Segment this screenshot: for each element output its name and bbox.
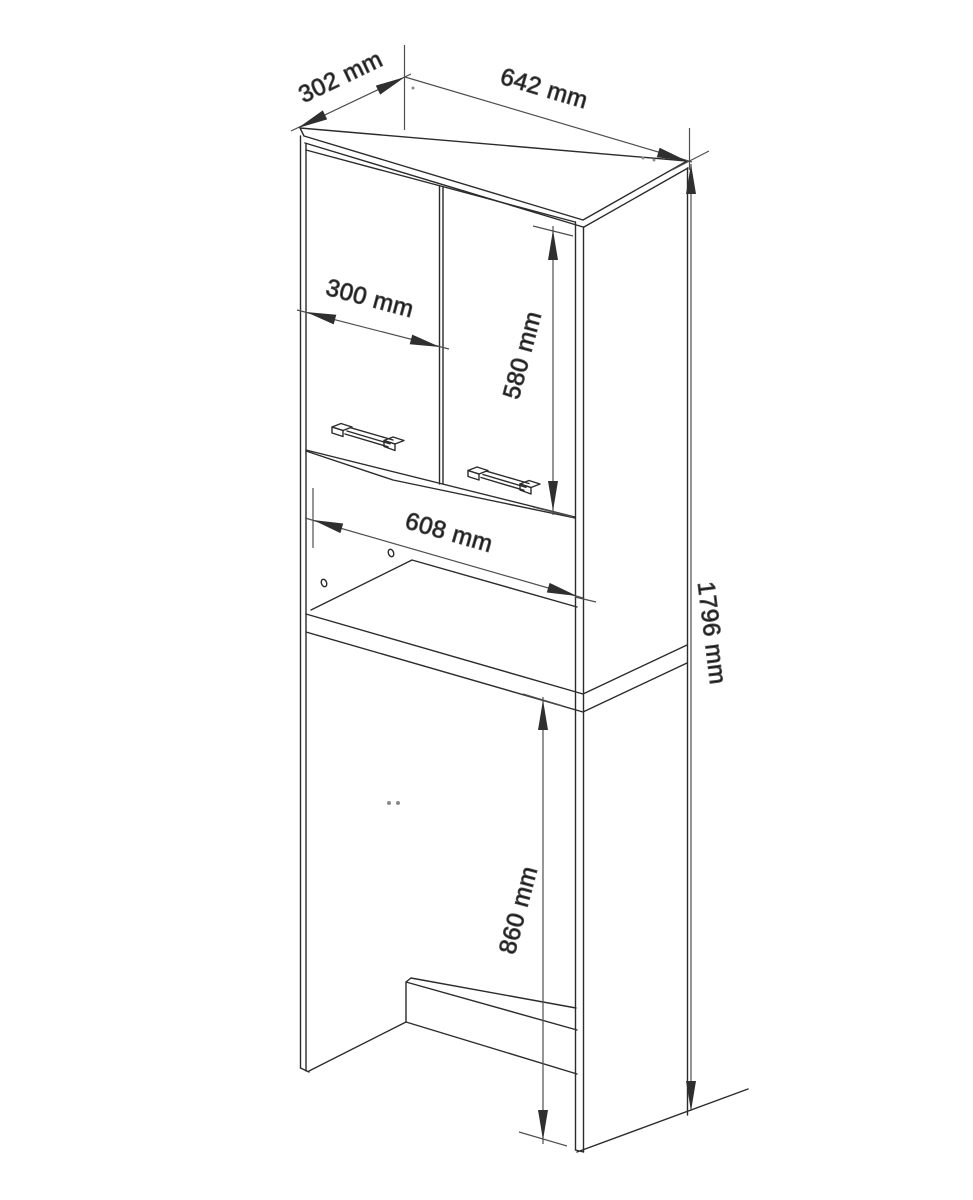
door-handle-right bbox=[468, 467, 540, 494]
arrowhead bbox=[306, 312, 336, 324]
arrowhead bbox=[538, 1110, 548, 1140]
arrowhead bbox=[376, 77, 405, 95]
arrowhead bbox=[548, 230, 558, 260]
middle-board bbox=[306, 614, 687, 712]
dimension-label-door-height: 580 mm bbox=[498, 308, 547, 402]
dimension-label-bottom-clearance: 860 mm bbox=[494, 863, 543, 957]
dimension-total-height: 1796 mm bbox=[672, 128, 731, 1111]
arrowhead bbox=[538, 700, 548, 730]
dimension-bottom-clearance: 860 mm bbox=[494, 694, 567, 1146]
dimension-door-height: 580 mm bbox=[498, 226, 573, 517]
dimension-label-door-width: 300 mm bbox=[323, 274, 417, 323]
door-handle-left bbox=[332, 424, 404, 451]
cabinet-technical-drawing: 302 mm 642 mm 300 mm 580 mm 608 mm bbox=[0, 0, 973, 1200]
dimension-label-total-height: 1796 mm bbox=[692, 580, 731, 686]
shelf-pin-hole bbox=[320, 579, 327, 588]
dimension-label-top-width: 642 mm bbox=[497, 63, 591, 114]
top-panel bbox=[300, 128, 688, 227]
arrowhead bbox=[547, 583, 577, 596]
arrowhead bbox=[410, 335, 440, 347]
drawing-canvas: 302 mm 642 mm 300 mm 580 mm 608 mm bbox=[0, 0, 973, 1200]
arrowhead bbox=[313, 520, 343, 533]
dimension-top-depth: 302 mm bbox=[291, 45, 411, 131]
shelf-pin-hole bbox=[387, 549, 394, 558]
arrowhead bbox=[298, 110, 327, 128]
bottom-plinth bbox=[301, 978, 749, 1152]
dimension-door-width: 300 mm bbox=[297, 274, 449, 349]
dimension-annotations: 302 mm 642 mm 300 mm 580 mm 608 mm bbox=[291, 45, 731, 1146]
arrowhead bbox=[548, 481, 558, 511]
dimension-label-top-depth: 302 mm bbox=[294, 46, 387, 109]
dimension-top-width: 642 mm bbox=[405, 63, 692, 162]
cabinet-outline bbox=[300, 87, 748, 1153]
